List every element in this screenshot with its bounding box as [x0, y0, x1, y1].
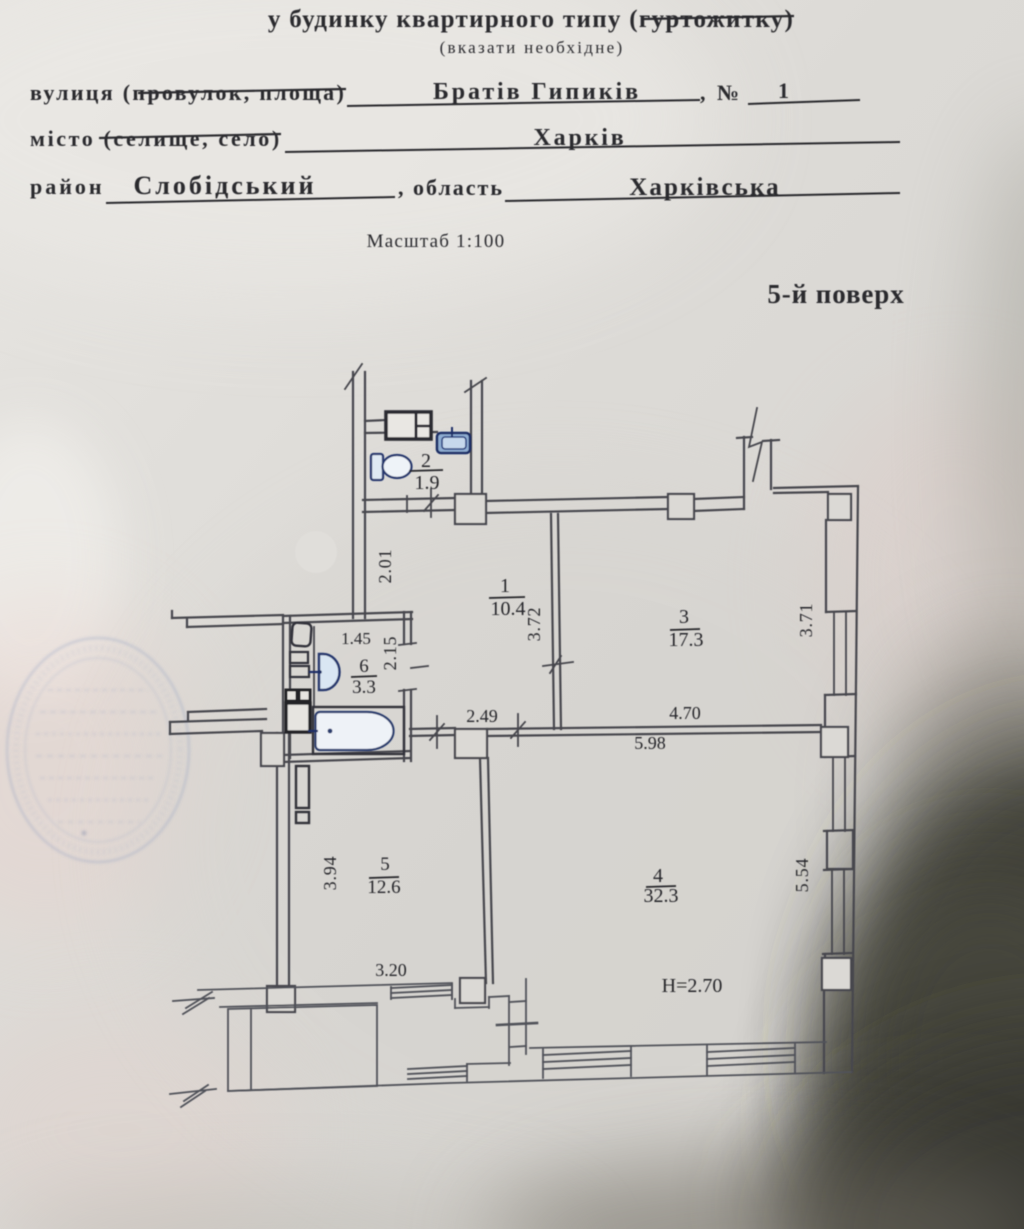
svg-text:2.49: 2.49: [466, 706, 498, 726]
svg-text:3: 3: [679, 606, 689, 628]
svg-text:10.4: 10.4: [491, 598, 526, 620]
svg-text:5.98: 5.98: [634, 733, 666, 753]
svg-text:17.3: 17.3: [669, 629, 704, 651]
svg-text:2.01: 2.01: [375, 549, 395, 584]
svg-text:3.3: 3.3: [352, 677, 376, 698]
svg-text:4.70: 4.70: [669, 703, 701, 723]
svg-text:12.6: 12.6: [367, 877, 400, 898]
svg-text:3.72: 3.72: [524, 607, 544, 642]
svg-text:5: 5: [380, 854, 390, 875]
svg-text:, область: , область: [398, 175, 504, 200]
svg-text:2.15: 2.15: [380, 636, 400, 671]
svg-text:1: 1: [778, 78, 789, 103]
svg-text:1: 1: [500, 575, 510, 597]
svg-text:3.94: 3.94: [320, 856, 340, 891]
svg-text:, №: , №: [700, 80, 742, 105]
svg-text:Масштаб 1:100: Масштаб 1:100: [367, 231, 506, 252]
svg-text:1.9: 1.9: [415, 472, 440, 494]
svg-text:6: 6: [359, 656, 369, 677]
svg-text:у будинку квартирного типу (гу: у будинку квартирного типу (гуртожитку): [268, 6, 794, 33]
svg-text:3.71: 3.71: [796, 603, 816, 638]
svg-text:Слобідський: Слобідський: [134, 171, 317, 200]
svg-text:5-й поверх: 5-й поверх: [767, 279, 904, 309]
svg-text:місто (селище, село): місто (селище, село): [30, 126, 282, 151]
svg-text:3.20: 3.20: [375, 960, 407, 980]
svg-text:5.54: 5.54: [792, 858, 812, 893]
svg-text:(вказати необхідне): (вказати необхідне): [440, 38, 625, 57]
svg-text:H=2.70: H=2.70: [662, 975, 723, 997]
svg-text:32.3: 32.3: [644, 885, 679, 907]
svg-text:1.45: 1.45: [341, 629, 371, 648]
svg-text:4: 4: [653, 865, 663, 887]
svg-text:район: район: [30, 174, 105, 199]
svg-text:2: 2: [421, 450, 431, 472]
